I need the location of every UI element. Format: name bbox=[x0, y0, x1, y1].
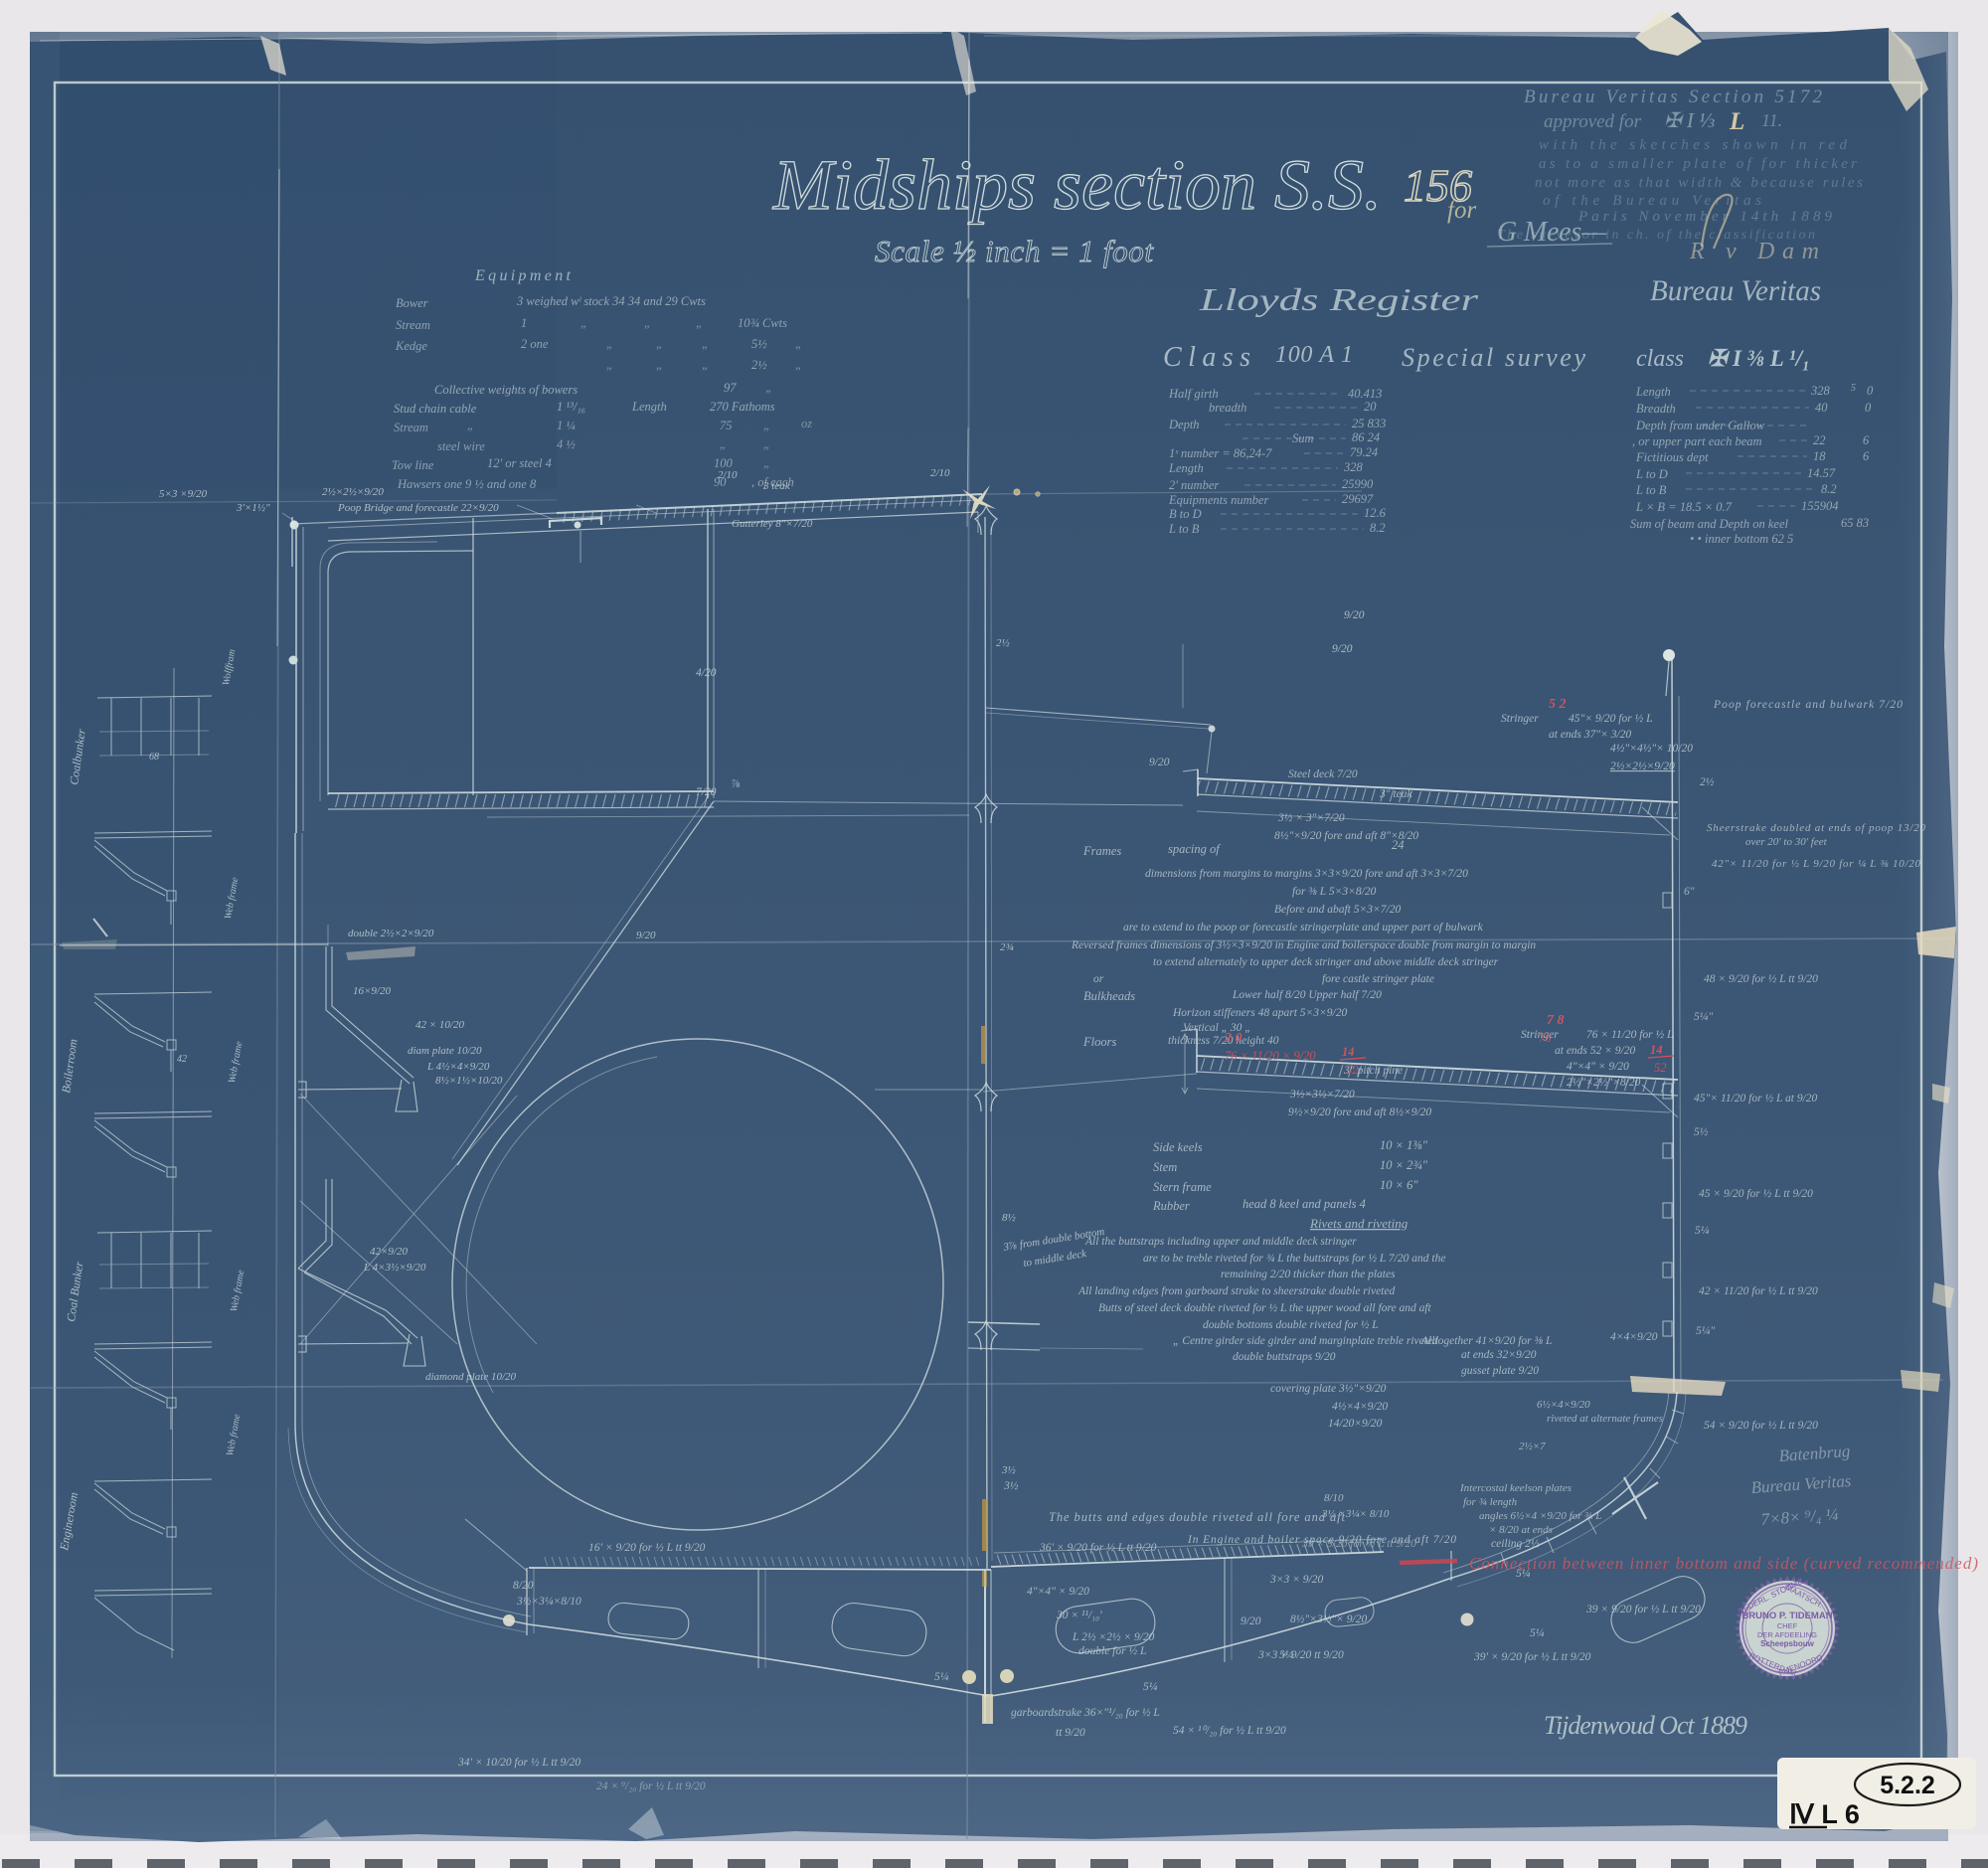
svg-text:„: „ bbox=[656, 337, 663, 351]
svg-text:Stringer: Stringer bbox=[1501, 713, 1539, 725]
svg-text:42"× 11/20 for ½ L 9/20 for ¼: 42"× 11/20 for ½ L 9/20 for ¼ L ⅜ 10/20 bbox=[1712, 858, 1921, 870]
svg-text:Stern frame: Stern frame bbox=[1153, 1180, 1212, 1194]
svg-text:as to a smaller plate of for: as to a smaller plate of for thicker bbox=[1539, 156, 1857, 172]
svg-text:5¼: 5¼ bbox=[1695, 1225, 1710, 1237]
svg-text:76: 76 bbox=[1539, 1031, 1552, 1045]
svg-text:6": 6" bbox=[1684, 886, 1695, 898]
svg-text:9/20: 9/20 bbox=[1344, 609, 1365, 621]
svg-text:4/20: 4/20 bbox=[696, 667, 717, 679]
svg-text:76 × 11/20 for ½ L: 76 × 11/20 for ½ L bbox=[1586, 1029, 1673, 1041]
svg-text:„: „ bbox=[795, 358, 802, 372]
svg-text:45"× 11/20 for ½ L at 9/20: 45"× 11/20 for ½ L at 9/20 bbox=[1694, 1093, 1818, 1104]
svg-text:„: „ bbox=[702, 337, 709, 351]
svg-text:14: 14 bbox=[1650, 1043, 1663, 1057]
svg-text:270 Fathoms: 270 Fathoms bbox=[710, 400, 775, 414]
svg-text:2' number: 2' number bbox=[1169, 478, 1219, 492]
svg-text:Floors: Floors bbox=[1082, 1035, 1116, 1049]
svg-text:Equipments number: Equipments number bbox=[1168, 493, 1268, 507]
svg-text:5¼: 5¼ bbox=[1530, 1627, 1545, 1639]
svg-text:16×9/20: 16×9/20 bbox=[353, 985, 391, 997]
svg-text:9/20: 9/20 bbox=[1149, 757, 1170, 768]
svg-text:double bottoms double riv: double bottoms double riveted for ½ L bbox=[1203, 1319, 1379, 1331]
svg-text:24 × ⁹/₂₀ for ½ L tt 9/20: 24 × ⁹/₂₀ for ½ L tt 9/20 bbox=[596, 1781, 706, 1792]
svg-text:„: „ bbox=[696, 316, 703, 330]
svg-text:5¼: 5¼ bbox=[1279, 1649, 1294, 1661]
svg-text:2½×2½×9/20: 2½×2½×9/20 bbox=[322, 486, 384, 498]
svg-text:14: 14 bbox=[1342, 1045, 1355, 1059]
svg-text:• • inner bottom 62 5: • • inner bottom 62 5 bbox=[1690, 532, 1793, 546]
svg-text:0: 0 bbox=[1865, 401, 1872, 415]
svg-text:Poop forecastle and bulwark 7/: Poop forecastle and bulwark 7/20 bbox=[1713, 699, 1903, 711]
svg-text:45 × 9/20 for ½ L tt 9/20: 45 × 9/20 for ½ L tt 9/20 bbox=[1699, 1188, 1813, 1200]
svg-text:4"×4" × 9/20: 4"×4" × 9/20 bbox=[1027, 1586, 1089, 1598]
svg-text:10 × 2¾": 10 × 2¾" bbox=[1380, 1158, 1428, 1172]
svg-text:9/20: 9/20 bbox=[636, 930, 656, 941]
svg-text:4 ½: 4 ½ bbox=[557, 437, 576, 451]
svg-text:52: 52 bbox=[1654, 1061, 1667, 1075]
svg-text:at ends 32×9/20: at ends 32×9/20 bbox=[1461, 1349, 1537, 1361]
svg-text:Length: Length bbox=[1635, 385, 1671, 399]
svg-text:angles 6½×4 ×9/20 for ⅜ L: angles 6½×4 ×9/20 for ⅜ L bbox=[1479, 1510, 1601, 1522]
svg-text:2/10: 2/10 bbox=[930, 467, 950, 479]
svg-text:Poop Bridge and forecastle 22×: Poop Bridge and forecastle 22×9/20 bbox=[337, 502, 499, 514]
svg-text:at ends 52 × 9/20: at ends 52 × 9/20 bbox=[1555, 1045, 1635, 1057]
svg-text:5×3 ×9/20: 5×3 ×9/20 bbox=[159, 488, 208, 500]
svg-text:6½×4×9/20: 6½×4×9/20 bbox=[1537, 1399, 1590, 1411]
svg-text:100 A 1: 100 A 1 bbox=[1275, 342, 1353, 368]
svg-text:2 0: 2 0 bbox=[1224, 1031, 1242, 1046]
svg-text:1 ¹³/₁₆: 1 ¹³/₁₆ bbox=[557, 400, 585, 414]
svg-text:Breadth: Breadth bbox=[1636, 402, 1676, 416]
svg-text:are to be treble riveted: are to be treble riveted for ¾ L the but… bbox=[1143, 1253, 1445, 1265]
svg-text:Depth: Depth bbox=[1168, 418, 1200, 431]
svg-text:fore castle stringer plate: fore castle stringer plate bbox=[1322, 973, 1434, 985]
svg-text:Hawsers one 9 ½ and one 8: Hawsers one 9 ½ and one 8 bbox=[397, 477, 537, 491]
svg-text:3½×3½×7/20: 3½×3½×7/20 bbox=[1289, 1089, 1355, 1101]
svg-text:DER AFDEELING: DER AFDEELING bbox=[1757, 1630, 1817, 1639]
svg-text:covering plate 3½"×9/20: covering plate 3½"×9/20 bbox=[1270, 1383, 1387, 1395]
svg-text:52: 52 bbox=[1346, 1063, 1359, 1077]
svg-text:, or upper part each beam: , or upper part each beam bbox=[1632, 434, 1762, 448]
svg-text:9½×9/20 fore and aft 8½×9/20: 9½×9/20 fore and aft 8½×9/20 bbox=[1288, 1106, 1431, 1118]
svg-text:„: „ bbox=[763, 456, 770, 470]
svg-text:8½"×3½"× 9/20: 8½"×3½"× 9/20 bbox=[1290, 1613, 1367, 1625]
svg-text:Rivets and riveting: Rivets and riveting bbox=[1309, 1216, 1408, 1231]
svg-text:Side keels: Side keels bbox=[1153, 1140, 1203, 1154]
svg-text:12' or steel 4: 12' or steel 4 bbox=[487, 456, 552, 470]
svg-text:Sum of beam and Depth on keel: Sum of beam and Depth on keel bbox=[1630, 517, 1789, 531]
svg-text:68: 68 bbox=[149, 752, 159, 763]
svg-text:2¾: 2¾ bbox=[1000, 941, 1014, 953]
svg-text:30 × ¹¹/₁₀': 30 × ¹¹/₁₀' bbox=[1056, 1610, 1102, 1621]
svg-text:„: „ bbox=[467, 419, 474, 432]
svg-text:3" teak: 3" teak bbox=[1379, 788, 1413, 800]
svg-text:Paris November 14th 1889: Paris November 14th 1889 bbox=[1577, 209, 1833, 225]
svg-text:not more as that width & becau: not more as that width & because rules bbox=[1535, 175, 1863, 191]
svg-text:garboardstrake 36×"¹/₂₀ for ½: garboardstrake 36×"¹/₂₀ for ½ L bbox=[1011, 1707, 1160, 1719]
svg-text:54 × ¹⁰/₂₀ for ½ L tt 9/20: 54 × ¹⁰/₂₀ for ½ L tt 9/20 bbox=[1173, 1725, 1286, 1737]
svg-text:25 833: 25 833 bbox=[1352, 417, 1386, 430]
svg-text:L 4½×4×9/20: L 4½×4×9/20 bbox=[426, 1061, 490, 1073]
svg-text:„: „ bbox=[795, 337, 802, 351]
svg-text:155904: 155904 bbox=[1801, 499, 1839, 513]
svg-text:with the sketches shown in red: with the sketches shown in red bbox=[1539, 137, 1848, 153]
svg-text:for ⅜ L 5×3×8/20: for ⅜ L 5×3×8/20 bbox=[1292, 886, 1377, 898]
svg-text:„: „ bbox=[580, 316, 587, 330]
svg-text:5¼": 5¼" bbox=[1696, 1325, 1715, 1337]
svg-text:Alltogether 41×9/20 for ⅜ L: Alltogether 41×9/20 for ⅜ L bbox=[1420, 1335, 1552, 1347]
svg-text:16' × 9/20 for ½ L tt 9/20: 16' × 9/20 for ½ L tt 9/20 bbox=[588, 1542, 706, 1554]
svg-text:Frames: Frames bbox=[1082, 844, 1121, 858]
svg-text:to extend alternately to uppe: to extend alternately to upper deck stri… bbox=[1153, 956, 1499, 968]
svg-text:8½"×9/20 fore and aft 8"×8/2: 8½"×9/20 fore and aft 8"×8/20 bbox=[1274, 830, 1418, 842]
svg-text:10¾ Cwts: 10¾ Cwts bbox=[738, 316, 787, 330]
svg-text:39 × 9/20 for ½ L tt 9/20: 39 × 9/20 for ½ L tt 9/20 bbox=[1585, 1604, 1701, 1615]
svg-text:Stem: Stem bbox=[1153, 1160, 1177, 1174]
svg-text:over 20' to 30' feet: over 20' to 30' feet bbox=[1745, 836, 1828, 848]
svg-text:„: „ bbox=[763, 437, 770, 451]
svg-text:Collective weights of bowers: Collective weights of bowers bbox=[434, 383, 578, 397]
svg-text:double for ½ L: double for ½ L bbox=[1078, 1645, 1146, 1657]
svg-text:2½: 2½ bbox=[996, 637, 1010, 649]
svg-text:Horizon stiffeners 48 apa: Horizon stiffeners 48 apart 5×3×9/20 bbox=[1172, 1007, 1348, 1019]
svg-text:Kedge: Kedge bbox=[395, 339, 427, 353]
svg-text:class: class bbox=[1636, 346, 1684, 372]
svg-text:1 ¼: 1 ¼ bbox=[557, 419, 576, 432]
svg-text:L: L bbox=[1729, 108, 1744, 135]
svg-text:54 × 9/20 for ½ L tt 9/20: 54 × 9/20 for ½ L tt 9/20 bbox=[1704, 1420, 1818, 1432]
svg-text:Stream: Stream bbox=[394, 421, 428, 434]
svg-text:All landing edges from garboar: All landing edges from garboard strake t… bbox=[1077, 1285, 1395, 1297]
svg-text:65 83: 65 83 bbox=[1841, 516, 1869, 530]
svg-text:„ Centre girder side girde: „ Centre girder side girder and marginpl… bbox=[1173, 1335, 1438, 1347]
svg-text:5¼: 5¼ bbox=[1143, 1681, 1158, 1693]
svg-text:3 teak: 3 teak bbox=[762, 480, 791, 492]
svg-text:remaining 2/20 thicker than: remaining 2/20 thicker than the plates bbox=[1221, 1269, 1396, 1280]
svg-text:9/20: 9/20 bbox=[1241, 1615, 1261, 1627]
svg-text:97: 97 bbox=[724, 381, 737, 395]
svg-text:5: 5 bbox=[1851, 383, 1856, 394]
svg-text:All the buttstraps including: All the buttstraps including upper and m… bbox=[1084, 1236, 1357, 1248]
svg-text:Bower: Bower bbox=[396, 296, 428, 310]
svg-text:12.6: 12.6 bbox=[1364, 506, 1387, 520]
svg-text:42: 42 bbox=[177, 1054, 187, 1065]
svg-text:18: 18 bbox=[1813, 449, 1826, 463]
svg-text:Length: Length bbox=[1168, 461, 1204, 475]
svg-text:BRUNO P. TIDEMAN: BRUNO P. TIDEMAN bbox=[1741, 1611, 1832, 1621]
svg-text:tt 9/20: tt 9/20 bbox=[1056, 1727, 1085, 1739]
svg-text:Butts of steel deck double: Butts of steel deck double riveted for ½… bbox=[1098, 1302, 1432, 1314]
svg-text:42 × 10/20: 42 × 10/20 bbox=[415, 1019, 464, 1031]
svg-text:L 4×3½×9/20: L 4×3½×9/20 bbox=[363, 1262, 426, 1274]
svg-text:5¼": 5¼" bbox=[1694, 1011, 1713, 1023]
svg-text:L 2½ ×2½ × 9/20: L 2½ ×2½ × 9/20 bbox=[1072, 1631, 1155, 1643]
svg-text:Tow line: Tow line bbox=[392, 458, 434, 472]
svg-text:B to D: B to D bbox=[1169, 507, 1202, 521]
svg-text:0: 0 bbox=[1867, 384, 1874, 398]
svg-text:Intercostal keelson plates: Intercostal keelson plates bbox=[1459, 1482, 1572, 1494]
svg-text:Scheepsbouw: Scheepsbouw bbox=[1760, 1639, 1815, 1648]
svg-text:14.57: 14.57 bbox=[1807, 466, 1836, 480]
svg-text:10 × 1⅜": 10 × 1⅜" bbox=[1380, 1138, 1428, 1152]
svg-text:75: 75 bbox=[720, 419, 733, 432]
svg-text:3 weighed wˡ stock 34 3: 3 weighed wˡ stock 34 34 and 29 Cwts bbox=[516, 294, 706, 308]
svg-text:20: 20 bbox=[1364, 400, 1377, 414]
svg-text:L to B: L to B bbox=[1168, 522, 1200, 536]
svg-text:or: or bbox=[1093, 973, 1104, 985]
svg-text:spacing of: spacing of bbox=[1168, 842, 1221, 856]
svg-text:22: 22 bbox=[1813, 433, 1826, 447]
svg-text:for: for bbox=[1447, 197, 1476, 224]
svg-text:✠ I ⅓: ✠ I ⅓ bbox=[1664, 108, 1715, 132]
svg-text:„: „ bbox=[606, 337, 613, 351]
svg-text:1ˢ number = 86,24-7: 1ˢ number = 86,24-7 bbox=[1169, 446, 1272, 460]
svg-text:L to B: L to B bbox=[1635, 483, 1667, 497]
svg-text:6: 6 bbox=[1863, 449, 1870, 463]
svg-text:„: „ bbox=[765, 381, 772, 395]
svg-text:for ¾ length: for ¾ length bbox=[1463, 1496, 1518, 1508]
svg-text:3½: 3½ bbox=[1001, 1464, 1016, 1476]
svg-text:2½×2½×9/20: 2½×2½×9/20 bbox=[1610, 761, 1675, 772]
svg-text:86 24: 86 24 bbox=[1352, 430, 1380, 444]
svg-text:double buttstraps 9/20: double buttstraps 9/20 bbox=[1233, 1351, 1336, 1363]
svg-text:1: 1 bbox=[521, 316, 527, 330]
svg-text:riveted at alternate frames: riveted at alternate frames bbox=[1547, 1413, 1663, 1425]
svg-text:3×3 × 9/20: 3×3 × 9/20 bbox=[1269, 1574, 1323, 1586]
svg-text:9/20: 9/20 bbox=[1332, 643, 1353, 655]
svg-text:Lower half 8/20 Upper half 7: Lower half 8/20 Upper half 7/20 bbox=[1232, 989, 1382, 1001]
svg-text:Length: Length bbox=[631, 400, 667, 414]
svg-text:2½: 2½ bbox=[751, 358, 767, 372]
svg-text:Stud chain cable: Stud chain cable bbox=[394, 402, 477, 416]
svg-text:breadth: breadth bbox=[1209, 401, 1246, 415]
svg-text:4½×4×9/20: 4½×4×9/20 bbox=[1332, 1401, 1388, 1413]
svg-text:⅞: ⅞ bbox=[732, 778, 741, 790]
svg-text:head 8 keel and panels 4: head 8 keel and panels 4 bbox=[1242, 1197, 1366, 1211]
svg-text:„: „ bbox=[656, 358, 663, 372]
svg-text:5¼: 5¼ bbox=[1516, 1568, 1531, 1580]
svg-text:Equipment: Equipment bbox=[474, 267, 572, 284]
svg-text:Tijdenwoud Oct 1889: Tijdenwoud Oct 1889 bbox=[1544, 1711, 1747, 1740]
svg-text:76 × 11/20 × 9/20: 76 × 11/20 × 9/20 bbox=[1225, 1049, 1316, 1063]
svg-text:Rubber: Rubber bbox=[1152, 1199, 1190, 1213]
svg-text:The butts and edges double ri: The butts and edges double riveted all f… bbox=[1049, 1510, 1346, 1524]
svg-text:7 8: 7 8 bbox=[1547, 1013, 1565, 1028]
svg-text:L × B = 18.5 × 0.7: L × B = 18.5 × 0.7 bbox=[1635, 500, 1733, 514]
svg-text:Midships section S.S.: Midships section S.S. bbox=[772, 145, 1382, 225]
svg-text:328: 328 bbox=[1343, 460, 1364, 474]
svg-text:Bureau Veritas Section 5172: Bureau Veritas Section 5172 bbox=[1524, 86, 1823, 107]
svg-text:steel wire: steel wire bbox=[437, 439, 485, 453]
svg-text:Before and abaft 5×3×7/20: Before and abaft 5×3×7/20 bbox=[1274, 904, 1401, 916]
svg-text:40: 40 bbox=[1815, 401, 1828, 415]
svg-text:39 × 9/20 for ½ L tt 9/20: 39 × 9/20 for ½ L tt 9/20 bbox=[1301, 1538, 1416, 1550]
svg-text:4"×4" × 9/20: 4"×4" × 9/20 bbox=[1567, 1061, 1629, 1073]
svg-text:2½×7: 2½×7 bbox=[1519, 1441, 1546, 1452]
svg-text:Steel deck 7/20: Steel deck 7/20 bbox=[1288, 768, 1358, 780]
svg-text:„: „ bbox=[644, 316, 651, 330]
svg-text:Reversed frames dimensions of: Reversed frames dimensions of 3½×3×9/20 … bbox=[1071, 939, 1536, 951]
svg-text:Bureau Veritas: Bureau Veritas bbox=[1650, 274, 1821, 307]
svg-text:5 2: 5 2 bbox=[1549, 697, 1567, 712]
svg-text:5.2.2: 5.2.2 bbox=[1880, 1772, 1935, 1799]
svg-text:Half girth: Half girth bbox=[1168, 387, 1219, 401]
svg-text:11.: 11. bbox=[1761, 110, 1782, 130]
svg-text:L to D: L to D bbox=[1635, 467, 1668, 481]
svg-text:2½: 2½ bbox=[1700, 776, 1715, 788]
svg-text:8.2: 8.2 bbox=[1370, 521, 1386, 535]
svg-text:48 × 9/20 for ½ L tt 9/20: 48 × 9/20 for ½ L tt 9/20 bbox=[1704, 973, 1818, 985]
svg-text:gusset plate 9/20: gusset plate 9/20 bbox=[1461, 1365, 1539, 1377]
svg-text:Bulkheads: Bulkheads bbox=[1083, 989, 1135, 1003]
svg-text:3×3 × 9/20 tt 9/20: 3×3 × 9/20 tt 9/20 bbox=[1257, 1649, 1344, 1661]
svg-text:36' × 9/20 for ½ L tt 9/20: 36' × 9/20 for ½ L tt 9/20 bbox=[1039, 1542, 1157, 1554]
svg-text:G Mees—: G Mees— bbox=[1497, 217, 1607, 248]
svg-text:2½"×2½"×8/20: 2½"×2½"×8/20 bbox=[1567, 1077, 1641, 1089]
svg-text:„: „ bbox=[720, 437, 727, 451]
svg-text:39' × 9/20 for ½ L tt 9/20: 39' × 9/20 for ½ L tt 9/20 bbox=[1473, 1651, 1591, 1663]
svg-text:3½ × 3"×7/20: 3½ × 3"×7/20 bbox=[1277, 812, 1345, 824]
svg-text:3½×3¼×8/10: 3½×3¼×8/10 bbox=[516, 1596, 581, 1608]
svg-text:Stream: Stream bbox=[396, 318, 430, 332]
svg-text:7/20: 7/20 bbox=[696, 786, 717, 798]
svg-text:25990: 25990 bbox=[1342, 477, 1374, 491]
svg-text:dimensions from margins to: dimensions from margins to margins 3×3×9… bbox=[1145, 868, 1468, 880]
svg-text:42×9/20: 42×9/20 bbox=[370, 1246, 408, 1258]
svg-text:3½ ×3¼× 8/10: 3½ ×3¼× 8/10 bbox=[1321, 1508, 1390, 1520]
svg-text:8/20: 8/20 bbox=[513, 1580, 534, 1592]
svg-text:✠ I ⅜ L ¹/₁: ✠ I ⅜ L ¹/₁ bbox=[1708, 346, 1810, 371]
svg-text:10 × 6": 10 × 6" bbox=[1380, 1178, 1418, 1192]
svg-text:5½: 5½ bbox=[751, 337, 767, 351]
svg-text:3½: 3½ bbox=[1003, 1480, 1019, 1492]
svg-text:2/10: 2/10 bbox=[718, 469, 738, 481]
svg-text:double 2½×2×9/20: double 2½×2×9/20 bbox=[348, 928, 434, 939]
svg-text:6: 6 bbox=[1863, 433, 1870, 447]
svg-text:Ⅳ L 6: Ⅳ L 6 bbox=[1789, 1799, 1860, 1829]
svg-text:45"× 9/20 for ½ L: 45"× 9/20 for ½ L bbox=[1569, 713, 1652, 725]
svg-text:40.413: 40.413 bbox=[1348, 387, 1382, 401]
svg-text:are to extend to the poop or f: are to extend to the poop or forecastle … bbox=[1123, 922, 1484, 934]
svg-text:approved for: approved for bbox=[1544, 111, 1642, 132]
svg-text:Scale ½ inch = 1 foot: Scale ½ inch = 1 foot bbox=[875, 234, 1154, 268]
svg-text:5½: 5½ bbox=[1694, 1126, 1709, 1138]
svg-text:8½: 8½ bbox=[1002, 1212, 1016, 1224]
svg-text:5¼: 5¼ bbox=[934, 1671, 949, 1683]
svg-text:„: „ bbox=[606, 358, 613, 372]
svg-text:8/10: 8/10 bbox=[1324, 1492, 1344, 1504]
svg-text:„: „ bbox=[763, 419, 770, 432]
svg-text:thickness 7/20 height 40: thickness 7/20 height 40 bbox=[1168, 1035, 1279, 1047]
svg-text:Connection between inner botto: Connection between inner bottom and side… bbox=[1469, 1554, 1978, 1573]
svg-text:42 × 11/20 for ½ L tt 9/20: 42 × 11/20 for ½ L tt 9/20 bbox=[1699, 1285, 1818, 1297]
svg-text:diamond plate 10/20: diamond plate 10/20 bbox=[425, 1371, 517, 1383]
svg-text:14/20×9/20: 14/20×9/20 bbox=[1328, 1418, 1383, 1430]
svg-text:× 8/20 at ends: × 8/20 at ends bbox=[1489, 1524, 1553, 1536]
svg-text:Lloyds Register: Lloyds Register bbox=[1199, 281, 1479, 317]
svg-text:2 one: 2 one bbox=[521, 337, 549, 351]
svg-text:29697: 29697 bbox=[1342, 492, 1374, 506]
svg-text:CHEF: CHEF bbox=[1777, 1621, 1798, 1630]
svg-text:Fictitious dept: Fictitious dept bbox=[1635, 450, 1709, 464]
svg-text:328: 328 bbox=[1810, 384, 1831, 398]
svg-text:Gutterley 8"×7/20: Gutterley 8"×7/20 bbox=[732, 518, 813, 530]
svg-text:3'×1½": 3'×1½" bbox=[236, 502, 270, 514]
svg-text:34' × 10/20 for ½ L tt 9/20: 34' × 10/20 for ½ L tt 9/20 bbox=[457, 1757, 580, 1769]
svg-text:100: 100 bbox=[714, 456, 734, 470]
svg-text:oz: oz bbox=[801, 417, 812, 430]
svg-text:8½×1½×10/20: 8½×1½×10/20 bbox=[435, 1075, 503, 1087]
svg-text:ceiling 2½: ceiling 2½ bbox=[1491, 1538, 1540, 1550]
svg-text:at ends 37"× 3/20: at ends 37"× 3/20 bbox=[1549, 729, 1631, 741]
svg-text:8.2: 8.2 bbox=[1821, 482, 1837, 496]
svg-text:diam plate 10/20: diam plate 10/20 bbox=[408, 1045, 482, 1057]
svg-text:Sheerstrake doubled at ends of: Sheerstrake doubled at ends of poop 13/2… bbox=[1707, 822, 1926, 834]
svg-text:4½"×4½"× 10/20: 4½"×4½"× 10/20 bbox=[1610, 743, 1693, 755]
svg-text:4×4×9/20: 4×4×9/20 bbox=[1610, 1331, 1658, 1343]
svg-text:„: „ bbox=[702, 358, 709, 372]
svg-text:79.24: 79.24 bbox=[1350, 445, 1378, 459]
